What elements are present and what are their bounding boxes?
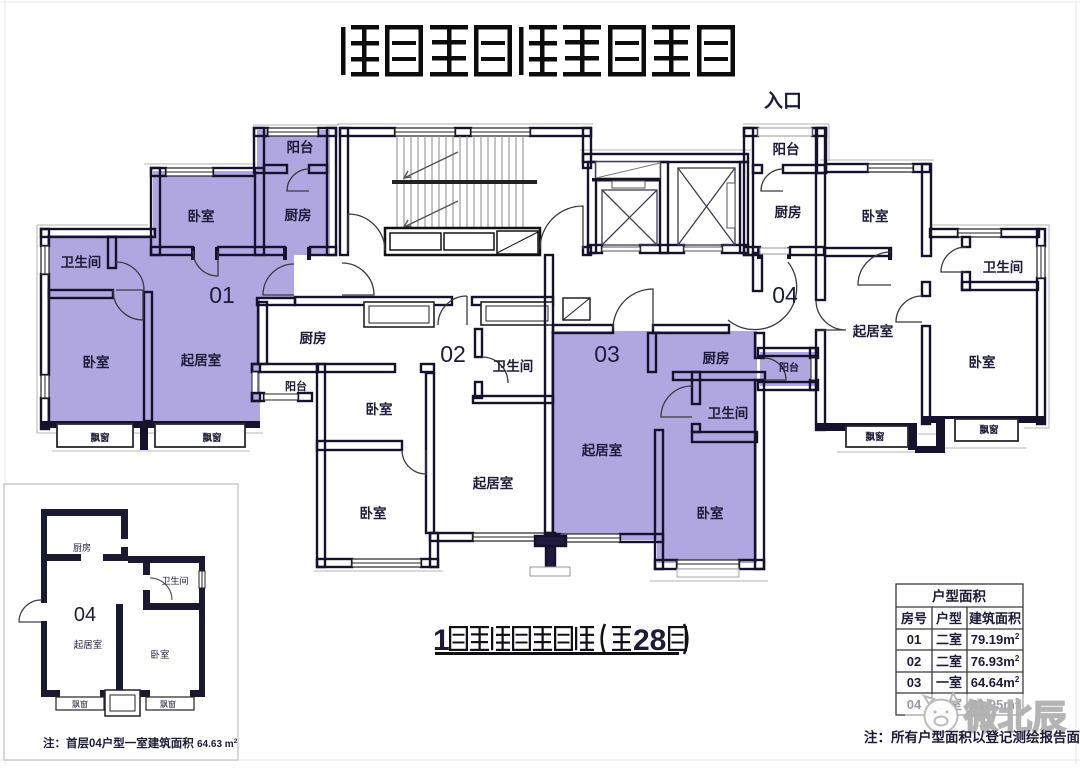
svg-text:厨房: 厨房 — [775, 204, 802, 220]
svg-text:起居室: 起居室 — [581, 442, 623, 458]
svg-text:起居室: 起居室 — [852, 323, 894, 339]
svg-text:卧室: 卧室 — [150, 649, 169, 661]
svg-text:注：首层04户型一室建筑面积 64.63 m2: 注：首层04户型一室建筑面积 64.63 m2 — [43, 736, 238, 750]
svg-text:卫生间: 卫生间 — [983, 259, 1024, 275]
svg-text:起居室: 起居室 — [472, 475, 514, 491]
svg-text:二室: 二室 — [936, 654, 962, 669]
svg-text:飘窗: 飘窗 — [89, 432, 110, 444]
svg-text:卧室: 卧室 — [862, 208, 890, 224]
svg-text:卧室: 卧室 — [969, 354, 997, 370]
svg-text:飘窗: 飘窗 — [72, 699, 88, 709]
svg-text:02: 02 — [440, 341, 466, 367]
svg-text:卧室: 卧室 — [366, 401, 393, 417]
svg-text:一室: 一室 — [936, 675, 962, 690]
svg-text:厨房: 厨房 — [703, 350, 730, 366]
svg-text:03: 03 — [907, 675, 921, 690]
svg-text:卧室: 卧室 — [360, 505, 387, 521]
svg-text:起居室: 起居室 — [74, 639, 103, 651]
svg-text:飘窗: 飘窗 — [978, 424, 999, 436]
svg-text:03: 03 — [594, 341, 620, 367]
svg-text:厨房: 厨房 — [300, 330, 327, 346]
svg-text:飘窗: 飘窗 — [201, 432, 222, 444]
svg-text:卫生间: 卫生间 — [708, 405, 749, 421]
svg-text:厨房: 厨房 — [73, 542, 91, 553]
svg-text:入口: 入口 — [764, 90, 802, 112]
svg-text:02: 02 — [907, 654, 921, 669]
svg-text:阳台: 阳台 — [779, 361, 799, 374]
svg-text:01: 01 — [209, 282, 235, 308]
svg-text:起居室: 起居室 — [180, 352, 222, 368]
svg-text:79.19m2: 79.19m2 — [971, 632, 1020, 647]
svg-text:阳台: 阳台 — [773, 141, 800, 157]
svg-text:飘窗: 飘窗 — [864, 431, 885, 443]
svg-text:卫生间: 卫生间 — [493, 358, 534, 374]
svg-text:建筑面积: 建筑面积 — [969, 611, 1021, 626]
svg-text:卫生间: 卫生间 — [161, 575, 188, 586]
svg-text:厨房: 厨房 — [285, 207, 312, 223]
svg-text:户型: 户型 — [936, 611, 962, 626]
svg-text:76.93m2: 76.93m2 — [971, 654, 1020, 669]
svg-text:注：所有户型面积以登记测绘报告面积为准: 注：所有户型面积以登记测绘报告面积为准 — [864, 729, 1080, 745]
svg-text:04: 04 — [772, 282, 798, 308]
svg-text:房号: 房号 — [901, 611, 927, 626]
svg-text:阳台: 阳台 — [285, 379, 307, 393]
svg-text:卫生间: 卫生间 — [61, 254, 102, 270]
svg-text:04: 04 — [74, 604, 96, 626]
svg-text:64.64m2: 64.64m2 — [971, 675, 1020, 690]
svg-text:飘窗: 飘窗 — [160, 699, 176, 709]
svg-text:阳台: 阳台 — [287, 139, 314, 155]
svg-text:卧室: 卧室 — [83, 354, 110, 370]
svg-text:二室: 二室 — [936, 632, 962, 647]
svg-text:卧室: 卧室 — [697, 505, 725, 521]
svg-text:户型面积: 户型面积 — [932, 588, 986, 604]
svg-text:卧室: 卧室 — [188, 208, 215, 224]
svg-text:01: 01 — [907, 632, 921, 647]
